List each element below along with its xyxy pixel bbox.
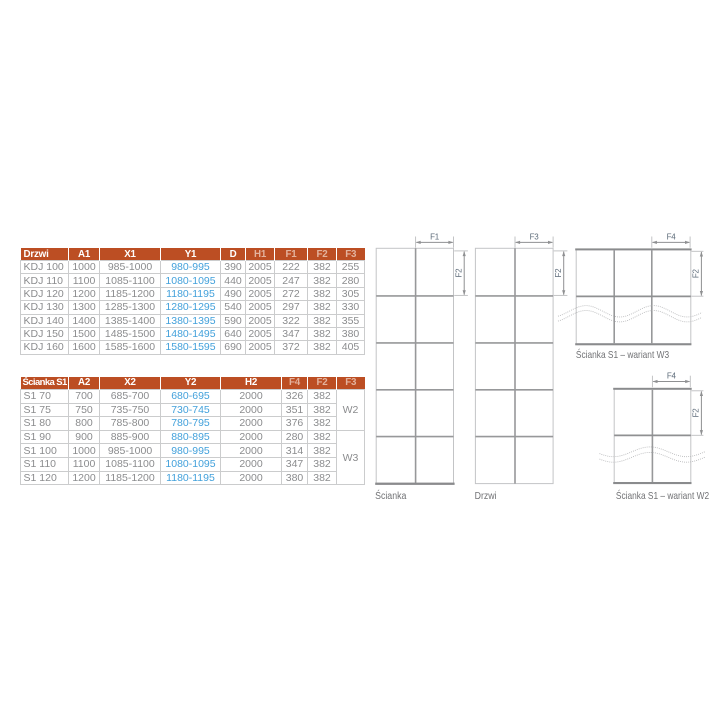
svg-text:F4: F4 bbox=[667, 372, 677, 381]
svg-text:F4: F4 bbox=[667, 233, 677, 242]
svg-text:Ścianka S1 – wariant W2: Ścianka S1 – wariant W2 bbox=[616, 489, 709, 501]
svg-text:F3: F3 bbox=[530, 233, 540, 242]
svg-text:F2: F2 bbox=[692, 408, 701, 418]
svg-text:F2: F2 bbox=[554, 268, 563, 278]
svg-text:Drzwi: Drzwi bbox=[475, 489, 497, 501]
svg-text:F2: F2 bbox=[692, 268, 701, 278]
svg-text:Ścianka S1 – wariant W3: Ścianka S1 – wariant W3 bbox=[576, 348, 669, 360]
svg-text:Ścianka: Ścianka bbox=[375, 489, 407, 501]
svg-text:F2: F2 bbox=[454, 268, 463, 278]
svg-text:F1: F1 bbox=[430, 233, 440, 242]
